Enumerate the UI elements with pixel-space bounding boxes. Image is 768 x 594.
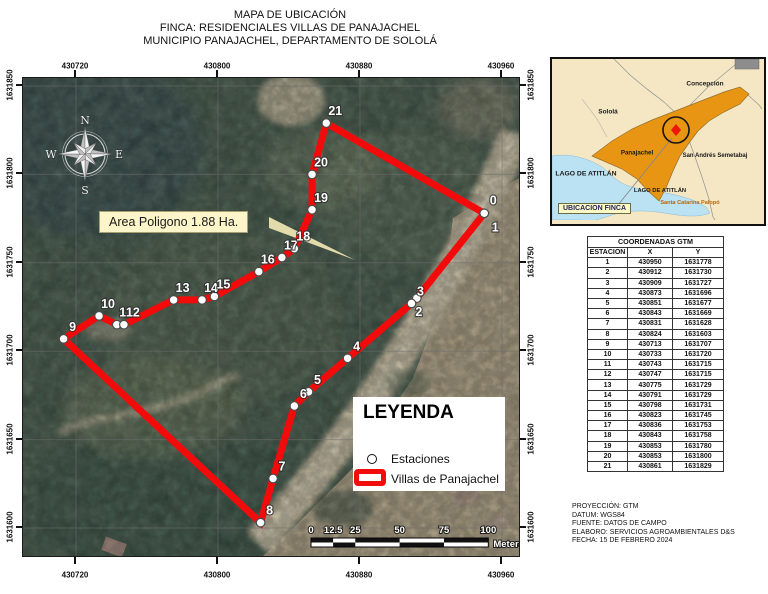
table-cell: 430873: [628, 288, 673, 298]
table-cell: 1631778: [673, 258, 724, 268]
area-label: Area Poligono 1.88 Ha.: [99, 211, 248, 233]
table-cell: 430824: [628, 329, 673, 339]
table-cell: 430798: [628, 400, 673, 410]
table-cell: 1631677: [673, 298, 724, 308]
axis-tick-label: 430800: [204, 571, 231, 580]
station-label: 9: [69, 320, 76, 334]
station-label: 13: [176, 281, 190, 295]
axis-tick-mark: [16, 172, 22, 174]
legend-item-parcel: Villas de Panajachel: [353, 469, 505, 489]
scalebar-tick-label: 50: [394, 525, 405, 536]
inset-corner-block: [735, 59, 759, 69]
station-label: 1: [492, 220, 499, 234]
axis-tick-label: 1631750: [527, 246, 536, 277]
legend-item-label: Estaciones: [391, 452, 450, 466]
note-datum: DATUM: WGS84: [572, 512, 735, 521]
scalebar-segment: [355, 538, 399, 543]
table-cell: 1631731: [673, 400, 724, 410]
station-dot: [290, 402, 299, 411]
table-row: 44308731631696: [588, 288, 724, 298]
table-cell: 10: [588, 349, 628, 359]
inset-label-lago-atitlan: LAGO DE ATITLÁN: [555, 171, 616, 178]
inset-map-graphic: [552, 59, 762, 220]
inset-location-map: Concepción Sololá Panajachel San Andrés …: [550, 57, 766, 226]
table-cell: 430823: [628, 411, 673, 421]
station-label: 18: [296, 230, 310, 244]
axis-tick-label: 1631700: [6, 335, 15, 366]
table-cell: 430909: [628, 278, 673, 288]
table-cell: 21: [588, 461, 628, 471]
axis-tick-label: 1631850: [527, 69, 536, 100]
table-cell: 430843: [628, 431, 673, 441]
table-cell: 1631730: [673, 268, 724, 278]
axis-tick-mark: [16, 438, 22, 440]
scalebar-tick-label: 100: [480, 525, 496, 536]
table-cell: 430853: [628, 451, 673, 461]
table-row: 204308531631800: [588, 451, 724, 461]
axis-tick-mark: [520, 438, 526, 440]
table-cell: 17: [588, 421, 628, 431]
axis-tick-label: 1631650: [527, 423, 536, 454]
map-document-page: MAPA DE UBICACIÓN FINCA: RESIDENCIALES V…: [0, 0, 768, 594]
table-cell: 1631753: [673, 421, 724, 431]
axis-tick-mark: [520, 349, 526, 351]
station-label: 16: [261, 253, 275, 267]
note-date: FECHA: 15 DE FEBRERO 2024: [572, 537, 735, 546]
table-row: 174308361631753: [588, 421, 724, 431]
page-title: MAPA DE UBICACIÓN FINCA: RESIDENCIALES V…: [30, 9, 550, 47]
legend-item-label: Villas de Panajachel: [391, 472, 499, 486]
table-row: 164308231631745: [588, 411, 724, 421]
compass-letter-east: E: [115, 148, 123, 161]
table-cell: 430831: [628, 319, 673, 329]
table-cell: 12: [588, 370, 628, 380]
scalebar-tick-label: 75: [439, 525, 450, 536]
table-row: 194308531631780: [588, 441, 724, 451]
table-cell: 430713: [628, 339, 673, 349]
station-label: 5: [314, 373, 321, 387]
axis-tick-mark: [16, 526, 22, 528]
station-dot: [59, 335, 68, 344]
legend-item-stations: Estaciones: [353, 449, 505, 469]
station-dot: [343, 354, 352, 363]
table-cell: 1631669: [673, 309, 724, 319]
table-cell: 1631603: [673, 329, 724, 339]
table-cell: 430836: [628, 421, 673, 431]
table-cell: 3: [588, 278, 628, 288]
station-dot: [169, 296, 178, 305]
table-cell: 14: [588, 390, 628, 400]
scalebar-segment: [333, 538, 355, 543]
table-cell: 430843: [628, 309, 673, 319]
table-cell: 20: [588, 451, 628, 461]
table-cell: 13: [588, 380, 628, 390]
compass-letter-south: S: [81, 184, 89, 197]
table-row: 34309091631727: [588, 278, 724, 288]
station-dot: [95, 312, 104, 321]
axis-tick-mark: [74, 70, 76, 77]
station-label: 2: [415, 305, 422, 319]
table-cell: 7: [588, 319, 628, 329]
table-row: 64308431631669: [588, 309, 724, 319]
table-cell: 5: [588, 298, 628, 308]
inset-label-solola: Sololá: [598, 109, 618, 116]
table-cell: 9: [588, 339, 628, 349]
station-label: 10: [101, 297, 115, 311]
axis-tick-mark: [16, 349, 22, 351]
table-cell: 430912: [628, 268, 673, 278]
table-cell: 2: [588, 268, 628, 278]
station-label: 3: [417, 284, 424, 298]
table-cell: 1631727: [673, 278, 724, 288]
note-projection: PROYECCIÓN: GTM: [572, 503, 735, 512]
coordinates-table-body: 1430950163177824309121631730343090916317…: [588, 258, 724, 472]
scalebar-segment: [311, 538, 333, 543]
axis-tick-label: 430960: [488, 571, 515, 580]
table-row: 14309501631778: [588, 258, 724, 268]
station-label: 19: [314, 191, 328, 205]
station-label: 0: [490, 193, 497, 207]
axis-tick-label: 1631800: [527, 158, 536, 189]
table-row: 54308511631677: [588, 298, 724, 308]
table-title: COORDENADAS GTM: [588, 237, 724, 248]
inset-label-san-andres: San Andrés Semetabaj: [683, 153, 748, 159]
axis-tick-mark: [520, 261, 526, 263]
table-cell: 8: [588, 329, 628, 339]
table-cell: 430861: [628, 461, 673, 471]
table-cell: 1631720: [673, 349, 724, 359]
column-header-y: Y: [673, 248, 724, 258]
station-dot: [278, 253, 287, 262]
table-row: 74308311631628: [588, 319, 724, 329]
axis-tick-mark: [216, 70, 218, 77]
station-label: 12: [126, 306, 140, 320]
legend-box: LEYENDA Estaciones Villas de Panajachel: [353, 397, 505, 491]
station-label: 6: [300, 387, 307, 401]
table-row: 184308431631758: [588, 431, 724, 441]
table-cell: 430791: [628, 390, 673, 400]
axis-tick-label: 1631600: [527, 511, 536, 542]
station-dot: [120, 320, 129, 329]
station-label: 4: [353, 339, 360, 353]
station-dot: [255, 267, 264, 276]
table-cell: 6: [588, 309, 628, 319]
axis-tick-label: 1631600: [6, 511, 15, 542]
axis-tick-mark: [16, 261, 22, 263]
table-cell: 430743: [628, 360, 673, 370]
axis-tick-label: 1631850: [6, 69, 15, 100]
scalebar-segment: [333, 543, 355, 548]
axis-tick-label: 430880: [346, 571, 373, 580]
table-row: 84308241631603: [588, 329, 724, 339]
axis-tick-mark: [358, 557, 360, 564]
table-row: 134307751631729: [588, 380, 724, 390]
column-header-x: X: [628, 248, 673, 258]
note-author: ELABORO: SERVICIOS AGROAMBIENTALES D&S: [572, 529, 735, 538]
table-row: 144307911631729: [588, 390, 724, 400]
table-cell: 1: [588, 258, 628, 268]
axis-tick-mark: [500, 70, 502, 77]
axis-tick-label: 1631650: [6, 423, 15, 454]
scalebar-segment: [444, 538, 488, 543]
table-cell: 18: [588, 431, 628, 441]
scalebar-tick-label: 0: [308, 525, 313, 536]
station-label: 8: [266, 504, 273, 518]
table-row: 104307331631720: [588, 349, 724, 359]
main-map: NSEW 0123456789101112131415161718192021 …: [22, 77, 520, 557]
inset-label-concepcion: Concepción: [686, 81, 723, 88]
scalebar-segment: [400, 543, 444, 548]
table-cell: 1631696: [673, 288, 724, 298]
table-row: 94307131631707: [588, 339, 724, 349]
station-dot: [480, 209, 489, 218]
station-label: 15: [216, 277, 230, 291]
table-cell: 1631715: [673, 370, 724, 380]
axis-tick-mark: [16, 84, 22, 86]
table-row: 114307431631715: [588, 360, 724, 370]
station-dot: [322, 119, 331, 128]
axis-tick-mark: [216, 557, 218, 564]
table-cell: 1631715: [673, 360, 724, 370]
axis-tick-mark: [520, 84, 526, 86]
table-cell: 1631829: [673, 461, 724, 471]
table-cell: 1631745: [673, 411, 724, 421]
axis-tick-mark: [74, 557, 76, 564]
axis-tick-mark: [500, 557, 502, 564]
scalebar-tick-label: 25: [350, 525, 361, 536]
table-cell: 1631707: [673, 339, 724, 349]
axis-tick-label: 430720: [62, 571, 89, 580]
table-cell: 19: [588, 441, 628, 451]
scalebar-tick-label: 12.5: [324, 525, 343, 536]
table-cell: 1631628: [673, 319, 724, 329]
table-row: 124307471631715: [588, 370, 724, 380]
station-dot: [308, 170, 317, 179]
station-dot: [308, 205, 317, 214]
table-cell: 1631758: [673, 431, 724, 441]
axis-tick-mark: [520, 526, 526, 528]
table-cell: 430775: [628, 380, 673, 390]
inset-label-lago-atitlan-2: LAGO DE ATITLÁN: [634, 188, 686, 194]
table-cell: 1631729: [673, 380, 724, 390]
compass-letter-north: N: [80, 114, 90, 127]
table-cell: 430733: [628, 349, 673, 359]
axis-tick-label: 1631800: [6, 158, 15, 189]
compass-letter-west: W: [45, 148, 57, 161]
column-header-estacion: ESTACION: [588, 248, 628, 258]
table-cell: 16: [588, 411, 628, 421]
title-line-3: MUNICIPIO PANAJACHEL, DEPARTAMENTO DE SO…: [30, 35, 550, 48]
map-metadata-notes: PROYECCIÓN: GTM DATUM: WGS84 FUENTE: DAT…: [572, 503, 735, 546]
table-cell: 11: [588, 360, 628, 370]
inset-label-panajachel: Panajachel: [621, 150, 653, 157]
station-dot: [269, 474, 278, 483]
table-cell: 1631780: [673, 441, 724, 451]
station-label: 21: [328, 104, 342, 118]
table-row: 154307981631731: [588, 400, 724, 410]
table-cell: 430851: [628, 298, 673, 308]
title-line-1: MAPA DE UBICACIÓN: [30, 9, 550, 22]
axis-tick-label: 1631750: [6, 246, 15, 277]
scalebar-segment: [444, 543, 488, 548]
axis-tick-mark: [520, 172, 526, 174]
table-cell: 430950: [628, 258, 673, 268]
scalebar-segment: [311, 543, 333, 548]
table-cell: 1631800: [673, 451, 724, 461]
table-row: 24309121631730: [588, 268, 724, 278]
coordinates-table: COORDENADAS GTM ESTACION X Y 14309501631…: [587, 236, 724, 472]
scalebar-segment: [355, 543, 399, 548]
station-dot: [198, 296, 207, 305]
station-symbol-icon: [367, 454, 377, 464]
ubicacion-finca-callout: UBICACION FINCA: [558, 203, 631, 214]
table-cell: 1631729: [673, 390, 724, 400]
title-line-2: FINCA: RESIDENCIALES VILLAS DE PANAJACHE…: [30, 22, 550, 35]
note-source: FUENTE: DATOS DE CAMPO: [572, 520, 735, 529]
scalebar-segment: [400, 538, 444, 543]
table-cell: 4: [588, 288, 628, 298]
parcel-symbol-icon: [354, 469, 386, 486]
table-cell: 430747: [628, 370, 673, 380]
inset-label-santa-catarina: Santa Catarina Palopó: [660, 200, 719, 206]
table-cell: 430853: [628, 441, 673, 451]
table-cell: 15: [588, 400, 628, 410]
station-label: 20: [314, 155, 328, 169]
axis-tick-mark: [358, 70, 360, 77]
axis-tick-label: 1631700: [527, 335, 536, 366]
station-label: 7: [279, 459, 286, 473]
legend-title: LEYENDA: [363, 402, 454, 424]
station-dot: [256, 518, 265, 527]
table-row: 214308611631829: [588, 461, 724, 471]
scalebar-unit-label: Meters: [493, 539, 519, 550]
